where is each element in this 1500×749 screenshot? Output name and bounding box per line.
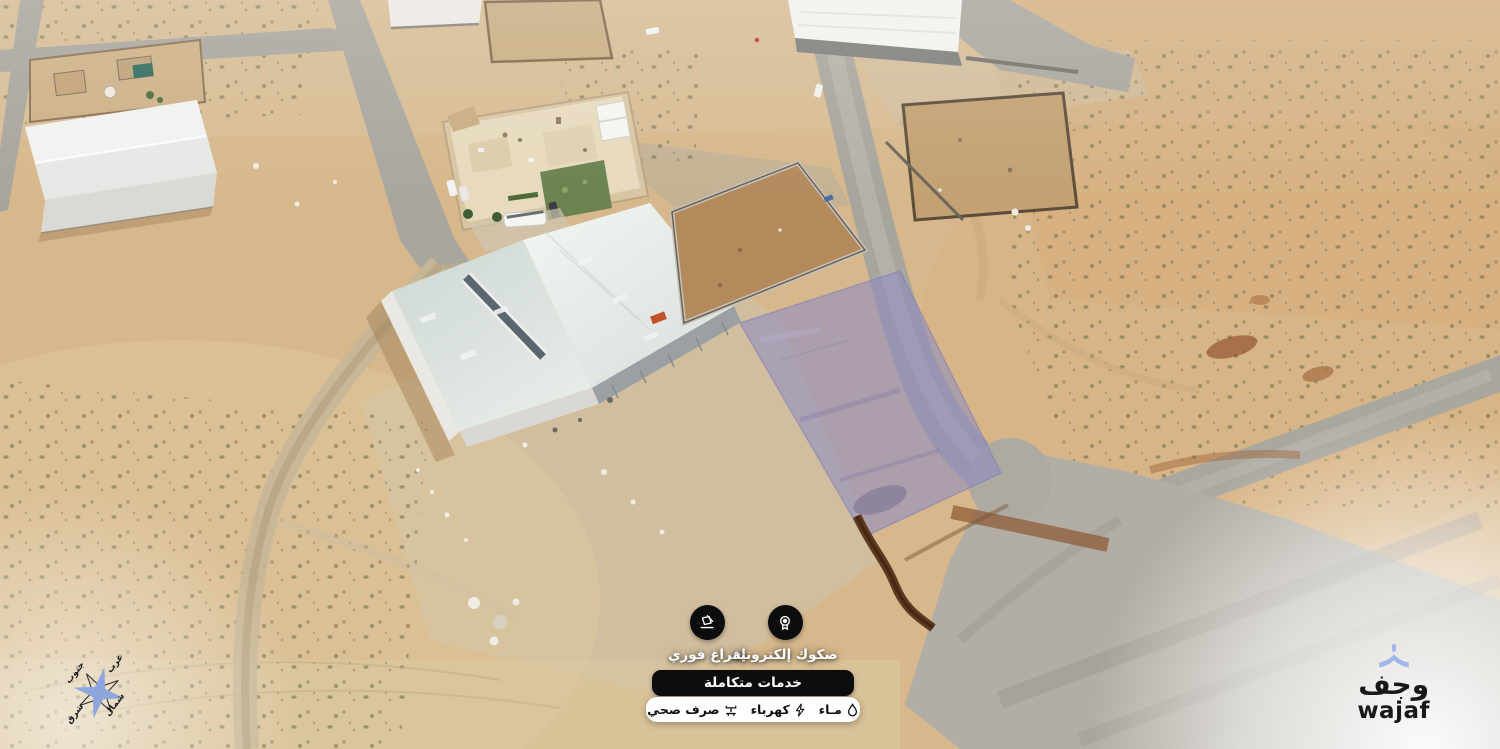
sewage-faucet-icon	[724, 703, 738, 717]
brand-logo: وجف wajaf	[1357, 644, 1430, 723]
service-sewage: صرف صحي	[647, 702, 737, 717]
descending-bird-icon	[1375, 644, 1413, 670]
water-drop-icon	[846, 703, 859, 717]
service-label: مـاء	[819, 702, 842, 717]
service-electricity: كهرباء	[751, 702, 806, 717]
badge-label: صكوك إلكترونية	[730, 647, 840, 663]
compass-star-icon	[53, 646, 147, 740]
services-title: خدمات متكاملة	[652, 670, 854, 696]
badge-disc	[690, 605, 725, 640]
signing-document-icon	[697, 613, 717, 633]
certificate-medal-icon	[775, 613, 795, 633]
aerial-listing-view: إفراغ فوري صكوك إلكترونية خدمات متكاملة …	[0, 0, 1500, 749]
badge-disc	[768, 605, 803, 640]
services-items: مـاء كهرباء صرف صحي	[646, 697, 860, 722]
compass-rose: غرب جنوب شرق شمال	[53, 646, 147, 740]
service-label: كهرباء	[751, 702, 790, 717]
electricity-bolt-icon	[794, 703, 806, 717]
brand-name-latin: wajaf	[1357, 700, 1430, 723]
brand-name-arabic: وجف	[1357, 671, 1430, 699]
service-label: صرف صحي	[647, 702, 719, 717]
service-water: مـاء	[819, 702, 859, 717]
electronic-deeds-badge: صكوك إلكترونية	[730, 605, 840, 663]
services-panel: خدمات متكاملة مـاء كهرباء	[646, 670, 860, 722]
